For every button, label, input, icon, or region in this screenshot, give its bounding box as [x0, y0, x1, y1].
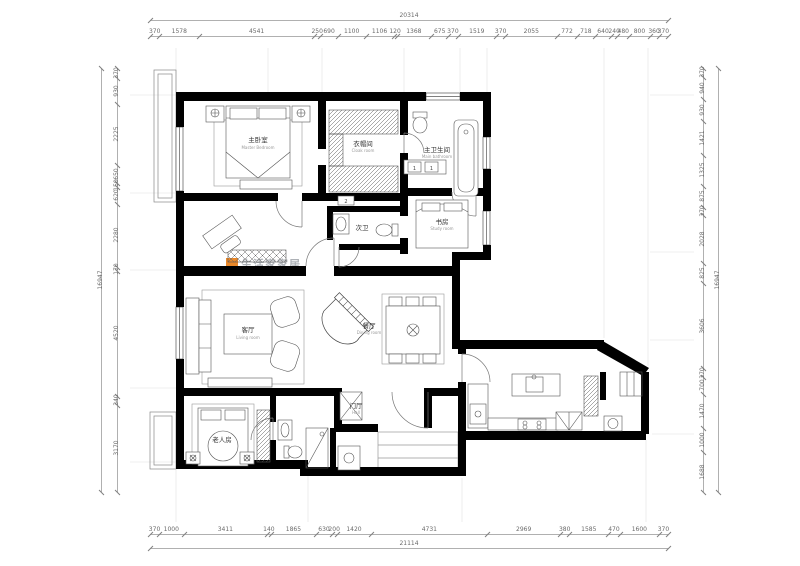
label-dining-en: Dining room [357, 330, 382, 335]
dimension-chain-top: 3701578454125069011001106120136867537015… [150, 26, 668, 40]
label-living-en: Living room [236, 335, 260, 340]
label-study-zh: 书房 [436, 217, 449, 226]
dimension-total-left: 16947 [94, 68, 108, 492]
label-guest-bath-zh: 次卫 [356, 223, 370, 232]
label-dining-zh: 餐厅 [363, 321, 377, 330]
kitchen-fixtures [468, 372, 642, 431]
dimension-chain-bottom: 3701000341114018656302001420473129693801… [150, 524, 668, 538]
label-master-en: Master Bedroom [241, 145, 274, 150]
dimension-chain-right: 3709409301421132587537020288253606370700… [696, 68, 710, 492]
tag-vanity-right: 1 [430, 166, 433, 172]
label-master-zh: 主卧室 [248, 135, 268, 144]
dimension-total-right: 16947 [711, 68, 725, 492]
tag-corridor: 2 [344, 199, 347, 205]
balcony-left-top [154, 70, 176, 202]
entry-porch [378, 432, 458, 472]
label-cloak-en: Cloak room [352, 148, 375, 153]
label-cloak-zh: 衣帽间 [353, 139, 373, 148]
balcony-left-bottom [150, 412, 176, 469]
tag-vanity-left: 1 [413, 166, 416, 172]
floorplan-canvas: 生活家家居 [0, 0, 800, 566]
label-living-zh: 客厅 [242, 325, 256, 334]
label-elder-zh: 老人房 [212, 435, 232, 444]
dimension-total-bottom: 21114 [150, 538, 668, 552]
label-hall-en: Hall [352, 410, 360, 415]
label-main-bath-zh: 主卫生间 [424, 145, 450, 154]
dining-furniture [382, 294, 444, 364]
dimension-total-top: 20314 [150, 10, 668, 24]
dimension-chain-left: 3709302225650150620228017045203403170 [110, 68, 124, 492]
railing-screen [228, 250, 286, 262]
label-hall-zh: 门厅 [350, 401, 364, 410]
label-main-bath-en: Main bathroom [422, 154, 452, 159]
label-study-en: Study room [430, 226, 453, 231]
elder-room-furniture [186, 404, 270, 466]
